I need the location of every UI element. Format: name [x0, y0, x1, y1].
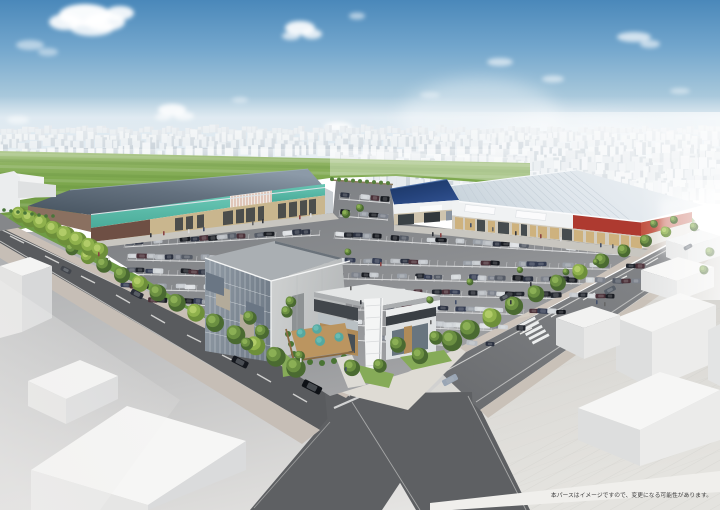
svg-text:本パースはイメージですので、変更になる可能性があります。: 本パースはイメージですので、変更になる可能性があります。	[551, 491, 712, 499]
